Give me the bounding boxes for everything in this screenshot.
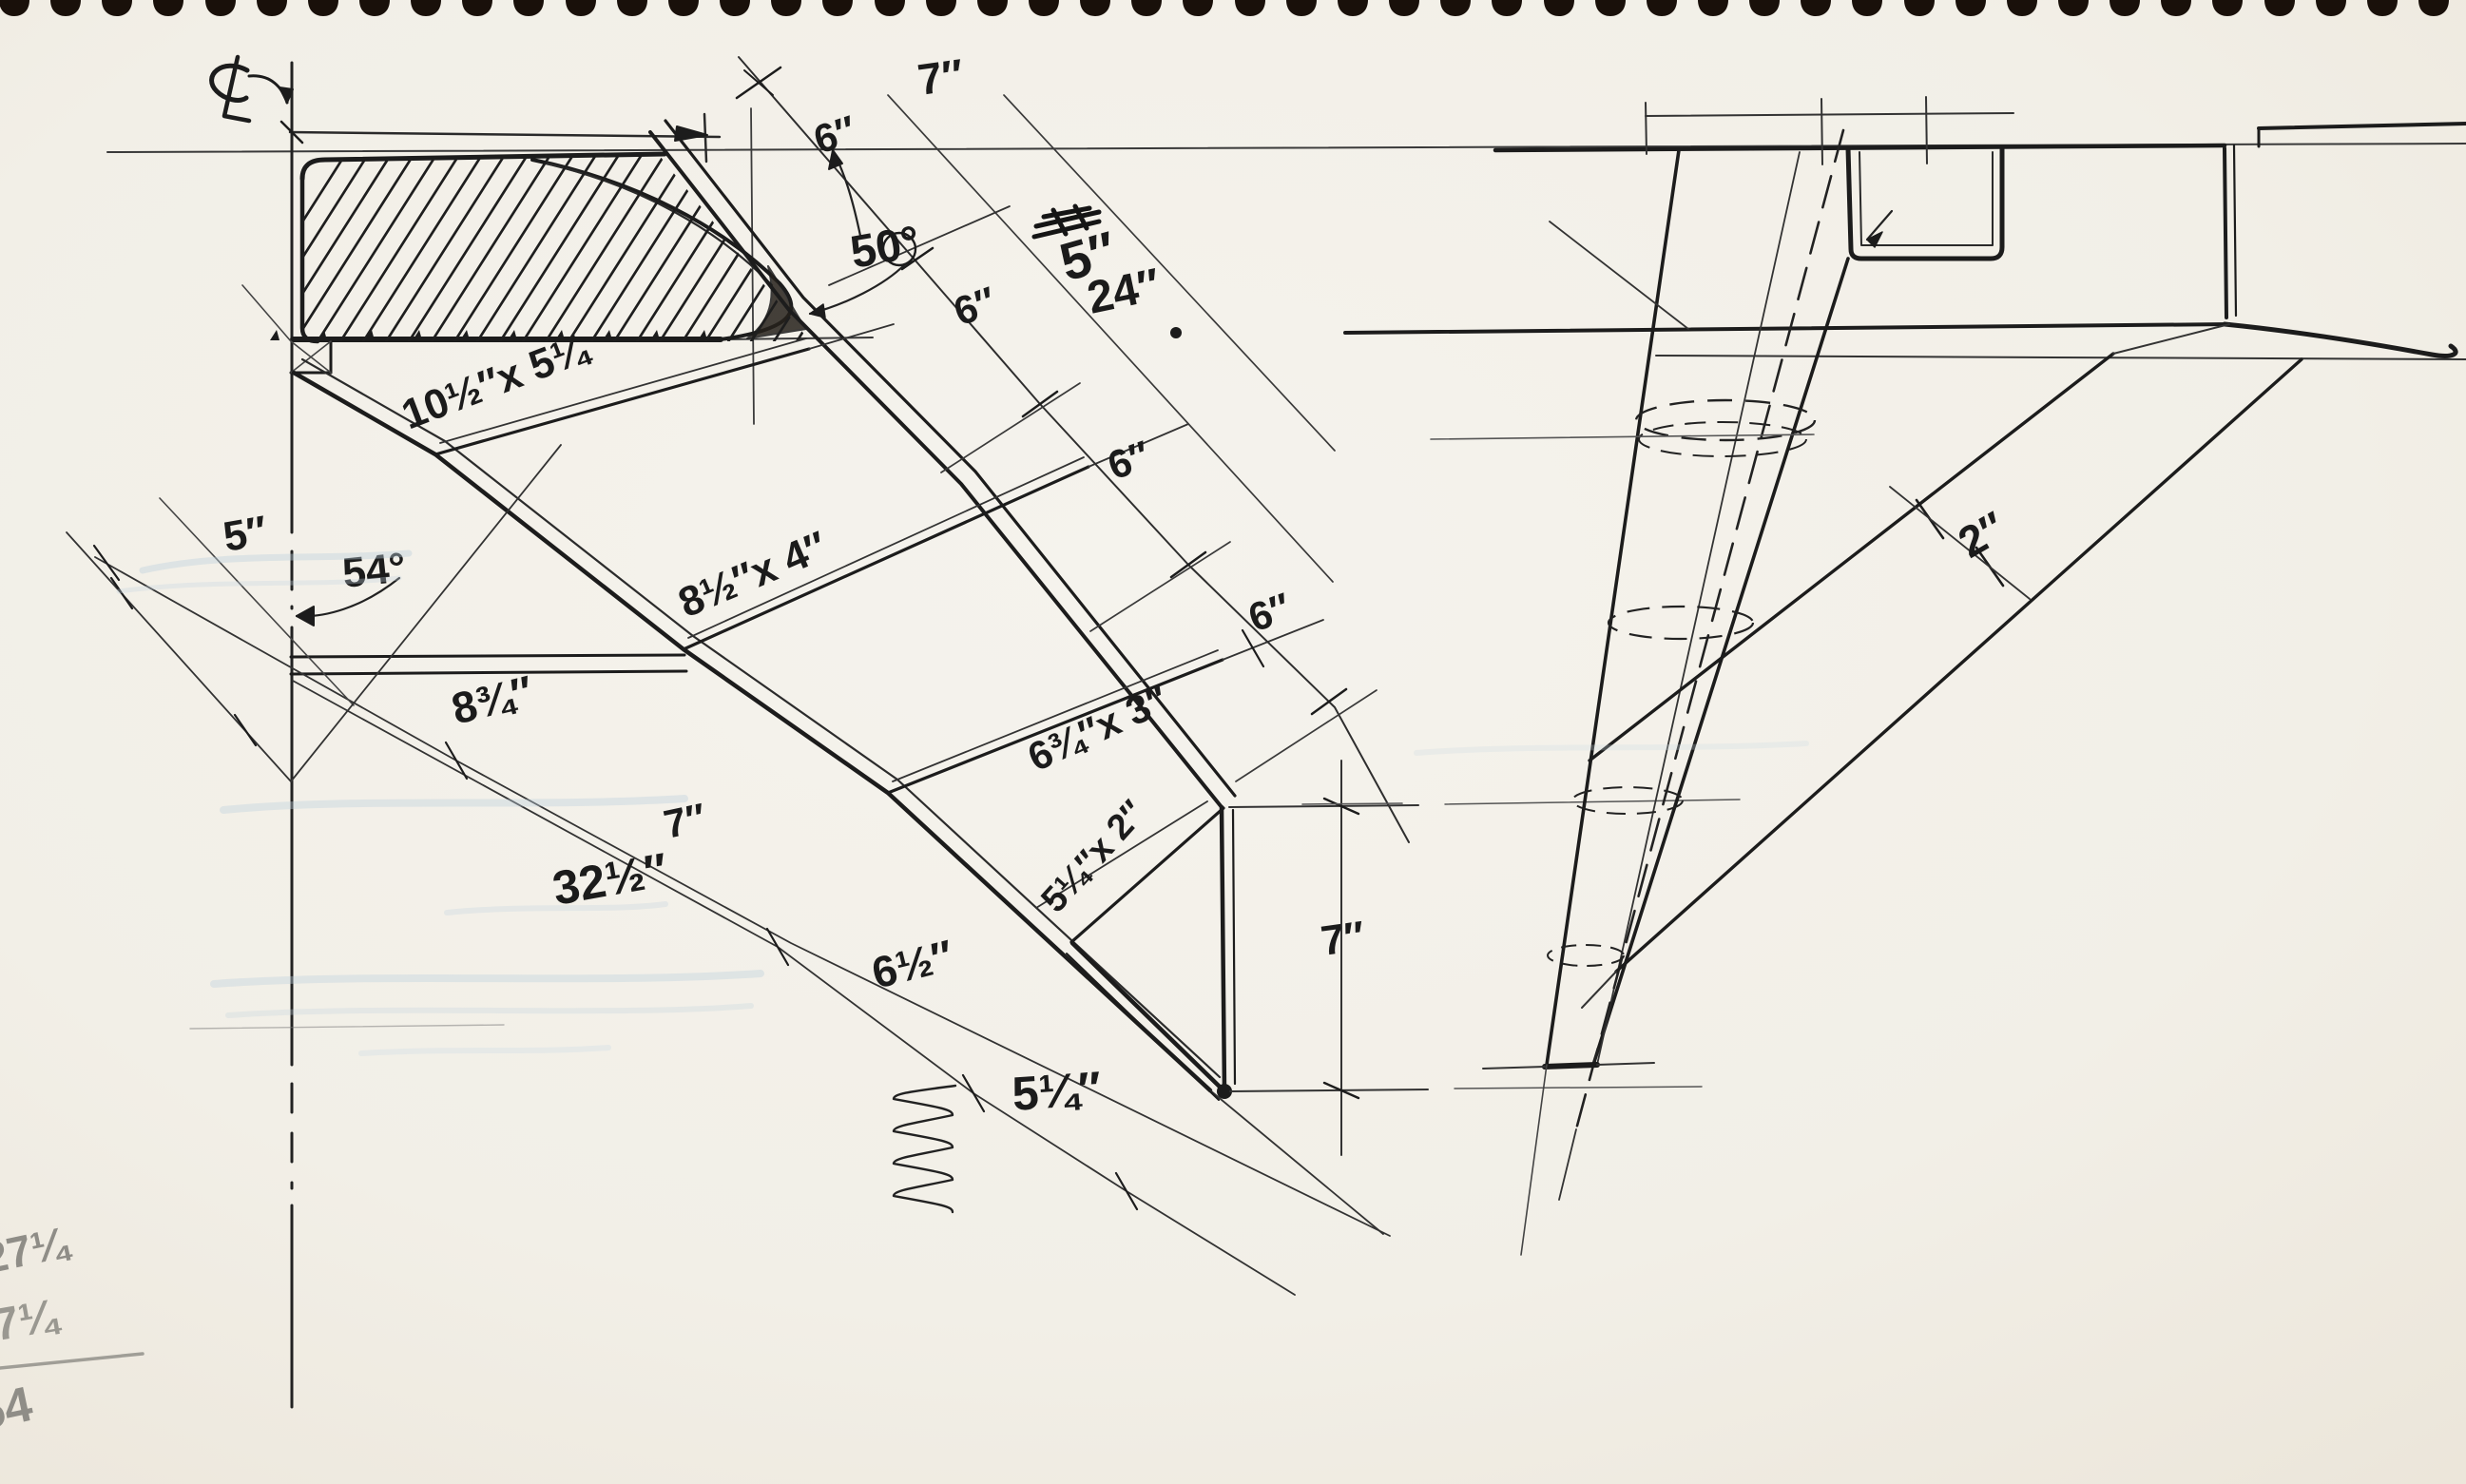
svg-text:5¼″: 5¼″	[1011, 1062, 1103, 1121]
svg-text:7″: 7″	[1319, 913, 1368, 965]
svg-text:7″: 7″	[915, 49, 966, 105]
svg-text:5″: 5″	[220, 508, 270, 561]
